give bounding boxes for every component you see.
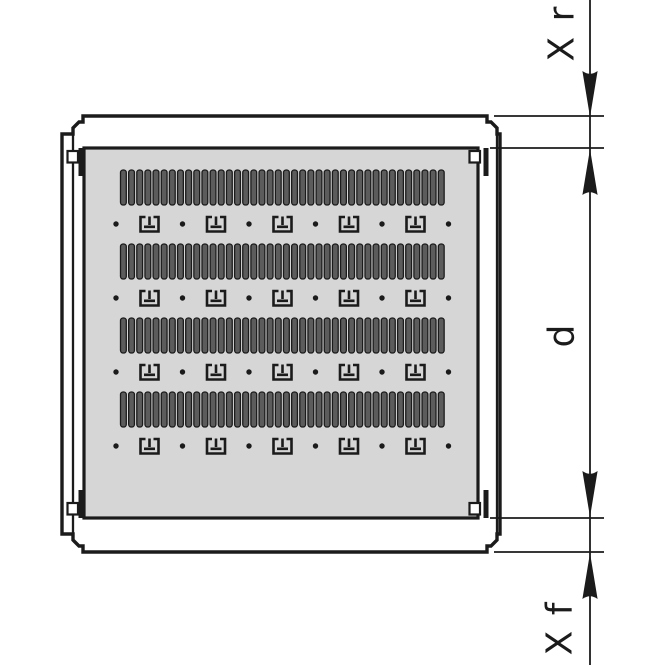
vent-slot [235,244,241,279]
vent-slot [153,392,159,427]
vent-slot [267,170,273,205]
vent-slot [226,392,232,427]
vent-slot [438,318,444,353]
vent-slot [430,318,436,353]
vent-slot [210,170,216,205]
vent-slot [398,244,404,279]
vent-slot [186,392,192,427]
vent-slot [251,244,257,279]
vent-slot [365,392,371,427]
vent-slot [259,318,265,353]
vent-slot [145,244,151,279]
vent-slot [422,170,428,205]
vent-slot [373,244,379,279]
tab-notch-top-left [68,151,79,163]
vent-slot [300,318,306,353]
vent-slot [365,170,371,205]
vent-slot [324,170,330,205]
vent-slot [414,244,420,279]
vent-slot [235,170,241,205]
vent-slot [275,170,281,205]
vent-slot [194,392,200,427]
vent-slot [300,244,306,279]
vent-slot [267,392,273,427]
vent-slot [357,244,363,279]
vent-slot [202,392,208,427]
vent-slot [129,318,135,353]
vent-slot [243,392,249,427]
vent-slot [406,244,412,279]
vent-slot [324,318,330,353]
vent-slot [178,244,184,279]
vent-slot [218,318,224,353]
vent-slot [308,318,314,353]
rivet-dot [246,221,251,226]
rivet-dot [379,221,384,226]
vent-slot [341,392,347,427]
rivet-dot [446,369,451,374]
vent-slot [381,392,387,427]
vent-slot [357,392,363,427]
vent-slot [422,318,428,353]
vent-slot [422,392,428,427]
rivet-dot [113,295,118,300]
vent-slot [406,170,412,205]
vent-slot [389,392,395,427]
vent-slot [284,318,290,353]
arrow-up-depth [582,149,597,195]
vent-slot [235,318,241,353]
dimension-label-rear: X r [542,5,583,62]
vent-slot [169,392,175,427]
vent-slot [284,392,290,427]
vent-slot [137,392,143,427]
vent-slot [218,392,224,427]
vent-slot [251,170,257,205]
vent-slot [292,318,298,353]
arrow-down-rear [582,71,597,117]
vent-slot [202,170,208,205]
vent-slot [316,392,322,427]
vent-slot [284,170,290,205]
vent-slot [186,244,192,279]
vent-slot [121,318,127,353]
rivet-dot [379,443,384,448]
vent-slot [292,170,298,205]
vent-slot [292,392,298,427]
tab-notch-top-right [470,151,481,163]
vent-slot [137,170,143,205]
rivet-dot [113,443,118,448]
vent-slot [332,392,338,427]
rivet-dot [446,295,451,300]
vent-slot [226,318,232,353]
vent-slot [226,244,232,279]
vent-slot [169,318,175,353]
rivet-dot [180,443,185,448]
vent-slot [365,318,371,353]
vent-slot [389,244,395,279]
vent-slot [414,318,420,353]
vent-slot [267,244,273,279]
vent-slot [381,244,387,279]
vent-slot [121,170,127,205]
vent-slot [308,244,314,279]
vent-slot [300,392,306,427]
vent-slot [186,318,192,353]
vent-slot [178,392,184,427]
vent-slot [186,170,192,205]
vent-slot [316,318,322,353]
rivet-dot [113,369,118,374]
rivet-dot [313,221,318,226]
vent-slot [194,170,200,205]
vent-slot [332,244,338,279]
vent-slot [129,170,135,205]
vent-slot [161,244,167,279]
rivet-dot [313,369,318,374]
vent-slot [341,244,347,279]
vent-slot [121,392,127,427]
vent-slot [169,244,175,279]
dimension-label-depth: d [542,323,583,348]
vent-slot [381,318,387,353]
vent-slot [251,318,257,353]
tab-notch-bottom-right [470,503,481,515]
vent-slot [357,170,363,205]
vent-slot [145,392,151,427]
vent-slot [332,170,338,205]
vent-slot [259,392,265,427]
vent-slot [169,170,175,205]
rivet-dot [113,221,118,226]
rivet-dot [313,443,318,448]
vent-slot [389,318,395,353]
vent-slot [398,392,404,427]
vent-slot [129,244,135,279]
rivet-dot [379,369,384,374]
vent-slot [324,392,330,427]
rivet-dot [180,369,185,374]
vent-slot [161,392,167,427]
rivet-dot [379,295,384,300]
vent-slot [161,318,167,353]
vent-slot [357,318,363,353]
vent-slot [308,170,314,205]
vent-slot [202,318,208,353]
vent-slot [218,170,224,205]
vent-slot [349,244,355,279]
vent-slot [275,244,281,279]
vent-slot [316,244,322,279]
vent-slot [292,244,298,279]
vent-slot [129,392,135,427]
vent-slot [275,318,281,353]
vent-slot [316,170,322,205]
vent-slot [300,170,306,205]
vent-slot [349,170,355,205]
vent-slot [210,392,216,427]
vent-slot [243,244,249,279]
vent-slot [153,318,159,353]
arrow-up-front [582,553,597,599]
vent-slot [235,392,241,427]
rivet-dot [446,221,451,226]
vent-slot [430,244,436,279]
vent-slot [194,244,200,279]
shelf-dimension-drawing: X r d X f [0,0,665,665]
rivet-dot [180,295,185,300]
vent-slot [153,170,159,205]
rivet-dot [180,221,185,226]
vent-slot [259,244,265,279]
vent-slot [341,170,347,205]
vent-slot [210,318,216,353]
vent-slot [398,318,404,353]
vent-slot [373,318,379,353]
vent-slot [145,318,151,353]
vent-slot [398,170,404,205]
vent-slot [161,170,167,205]
vent-slot [284,244,290,279]
vent-slot [194,318,200,353]
vent-slot [414,170,420,205]
vent-slot [226,170,232,205]
vent-slot [178,170,184,205]
rivet-dot [246,443,251,448]
vent-slot [218,244,224,279]
vent-slot [438,392,444,427]
rivet-dot [246,295,251,300]
vent-slot [430,392,436,427]
vent-slot [153,244,159,279]
vent-slot [389,170,395,205]
vent-slot [275,392,281,427]
vent-slot [243,318,249,353]
vent-slot [267,318,273,353]
rivet-dot [446,443,451,448]
vent-slot [243,170,249,205]
vent-slot [137,318,143,353]
dimension-label-front: X f [540,601,581,656]
vent-slot [324,244,330,279]
vent-slot [381,170,387,205]
vent-slot [259,170,265,205]
dimension-annotations: X r d X f [490,0,604,665]
vent-slot [137,244,143,279]
vent-slot [438,170,444,205]
vent-slot [406,392,412,427]
vent-slot [210,244,216,279]
vent-slot [121,244,127,279]
vent-slot [422,244,428,279]
vent-slot [365,244,371,279]
rivet-dot [246,369,251,374]
vent-slot [349,392,355,427]
vent-slot [341,318,347,353]
arrow-down-depth [582,471,597,517]
vent-slot [414,392,420,427]
vent-slot [178,318,184,353]
vent-slot [406,318,412,353]
vent-slot [202,244,208,279]
vent-slot [438,244,444,279]
vent-slot [349,318,355,353]
rivet-dot [313,295,318,300]
vent-slot [332,318,338,353]
vent-slot [373,392,379,427]
vent-slot [373,170,379,205]
vent-slot [308,392,314,427]
vent-slot [430,170,436,205]
vent-slot [145,170,151,205]
vent-slot [251,392,257,427]
tab-notch-bottom-left [68,503,79,515]
